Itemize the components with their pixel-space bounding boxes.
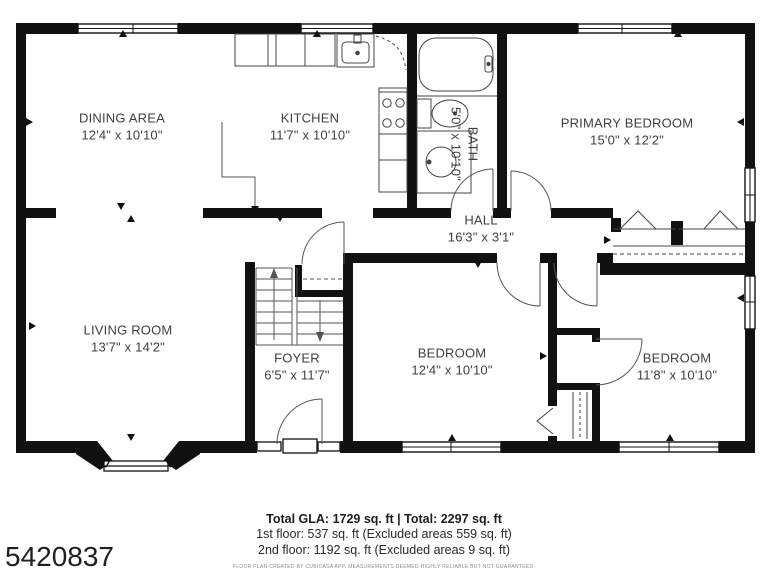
room-dims: 11'7" x 10'10" bbox=[270, 127, 350, 144]
room-name: BEDROOM bbox=[637, 351, 717, 368]
summary-total-line: Total GLA: 1729 sq. ft | Total: 2297 sq.… bbox=[0, 511, 768, 527]
area-summary: Total GLA: 1729 sq. ft | Total: 2297 sq.… bbox=[0, 511, 768, 570]
interior-walls bbox=[16, 34, 755, 453]
room-label-kitchen: KITCHEN 11'7" x 10'10" bbox=[270, 111, 350, 144]
room-name: BEDROOM bbox=[411, 346, 492, 363]
floor-plan-page: DINING AREA 12'4" x 10'10" KITCHEN 11'7"… bbox=[0, 0, 768, 576]
room-label-dining-area: DINING AREA 12'4" x 10'10" bbox=[79, 111, 165, 144]
room-dims: 15'0" x 12'2" bbox=[561, 132, 694, 149]
bathtub bbox=[417, 38, 497, 96]
room-label-bedroom-center: BEDROOM 12'4" x 10'10" bbox=[411, 346, 492, 379]
room-label-bath: BATH 5'0" x 10'10" bbox=[448, 107, 481, 181]
room-label-foyer: FOYER 6'5" x 11'7" bbox=[264, 351, 330, 384]
room-label-primary-bedroom: PRIMARY BEDROOM 15'0" x 12'2" bbox=[561, 116, 694, 149]
front-door bbox=[257, 399, 340, 453]
room-boundary-line bbox=[222, 122, 255, 206]
room-label-living-room: LIVING ROOM 13'7" x 14'2" bbox=[84, 323, 173, 356]
room-name: DINING AREA bbox=[79, 111, 165, 128]
room-dims: 12'4" x 10'10" bbox=[79, 127, 165, 144]
room-name: FOYER bbox=[264, 351, 330, 368]
closets-group bbox=[537, 211, 745, 439]
room-dims: 13'7" x 14'2" bbox=[84, 339, 173, 356]
floor-plan-drawing bbox=[0, 0, 768, 576]
summary-first-floor-line: 1st floor: 537 sq. ft (Excluded areas 55… bbox=[0, 527, 768, 543]
room-dims: 6'5" x 11'7" bbox=[264, 367, 330, 384]
room-dims: 12'4" x 10'10" bbox=[411, 362, 492, 379]
room-name: KITCHEN bbox=[270, 111, 350, 128]
disclaimer-text: FLOOR PLAN CREATED BY CUBICASA APP. MEAS… bbox=[0, 564, 768, 570]
room-dims: 5'0" x 10'10" bbox=[448, 107, 465, 181]
room-label-hall: HALL 16'3" x 3'1" bbox=[448, 213, 514, 246]
room-name: LIVING ROOM bbox=[84, 323, 173, 340]
room-name: PRIMARY BEDROOM bbox=[561, 116, 694, 133]
room-name: BATH bbox=[464, 107, 481, 181]
room-name: HALL bbox=[448, 213, 514, 230]
room-dims: 16'3" x 3'1" bbox=[448, 229, 514, 246]
room-dims: 11'8" x 10'10" bbox=[637, 367, 717, 384]
summary-second-floor-line: 2nd floor: 1192 sq. ft (Excluded areas 9… bbox=[0, 543, 768, 559]
room-label-bedroom-right: BEDROOM 11'8" x 10'10" bbox=[637, 351, 717, 384]
mls-number: 5420837 bbox=[5, 541, 114, 573]
stove bbox=[379, 92, 407, 134]
kitchen-sink bbox=[337, 34, 374, 67]
